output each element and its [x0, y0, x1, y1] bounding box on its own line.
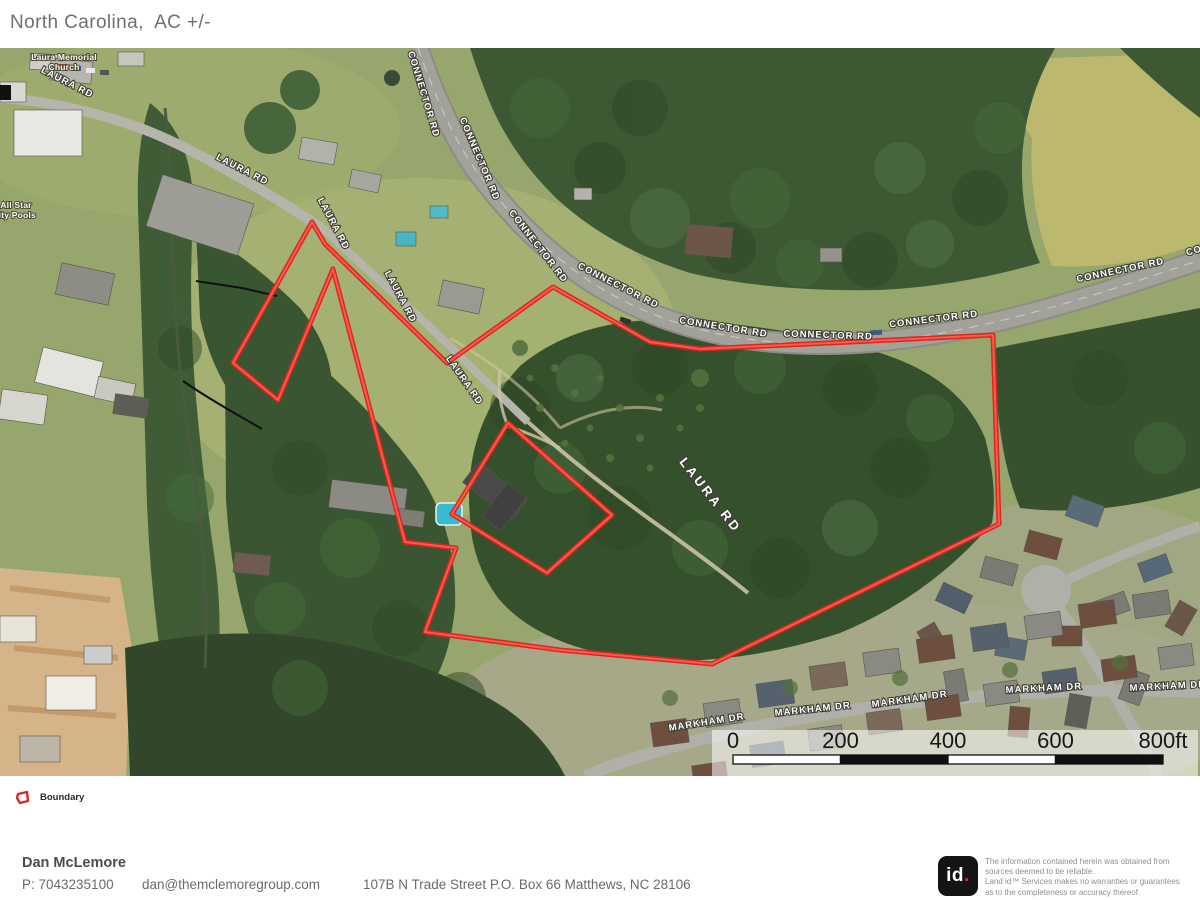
aerial-map: CONNECTOR RDCONNECTOR RDCONNECTOR RDCONN…	[0, 48, 1200, 776]
scale-bar-label: 600	[1037, 728, 1074, 753]
scale-bar: 0200400600800ft	[712, 728, 1198, 776]
scale-bar-label: 0	[727, 728, 739, 753]
disclaimer-text: The information contained herein was obt…	[985, 857, 1197, 898]
agent-email: dan@themclemoregroup.com	[142, 877, 320, 892]
scale-bar-segment	[948, 755, 1056, 764]
page-title: North Carolina, AC +/-	[10, 12, 211, 34]
place-label: All Starlity Pools	[0, 200, 36, 220]
legend: Boundary	[14, 789, 84, 806]
agent-phone: P: 7043235100	[22, 877, 114, 892]
disclaimer-line: as to the completeness or accuracy there…	[985, 888, 1197, 898]
cul-de-sac	[1021, 565, 1071, 615]
disclaimer-line: The information contained herein was obt…	[985, 857, 1197, 867]
boundary-legend-icon	[14, 789, 31, 806]
legend-label: Boundary	[40, 792, 84, 803]
scale-bar-label: 200	[822, 728, 859, 753]
disclaimer-line: Land id™ Services makes no warranties or…	[985, 877, 1197, 887]
agent-address: 107B N Trade Street P.O. Box 66 Matthews…	[363, 877, 691, 892]
scale-bar-segment	[1056, 755, 1164, 764]
scale-bar-segment	[841, 755, 949, 764]
report-page: North Carolina, AC +/-	[0, 0, 1200, 900]
scale-bar-label: 400	[930, 728, 967, 753]
land-id-logo: id.	[938, 856, 978, 896]
agent-name: Dan McLemore	[22, 855, 126, 871]
scale-bar-segment	[733, 755, 841, 764]
scale-bar-label: 800ft	[1139, 728, 1188, 753]
disclaimer-line: sources deemed to be reliable.	[985, 867, 1197, 877]
aerial-map-image: CONNECTOR RDCONNECTOR RDCONNECTOR RDCONN…	[0, 48, 1200, 776]
